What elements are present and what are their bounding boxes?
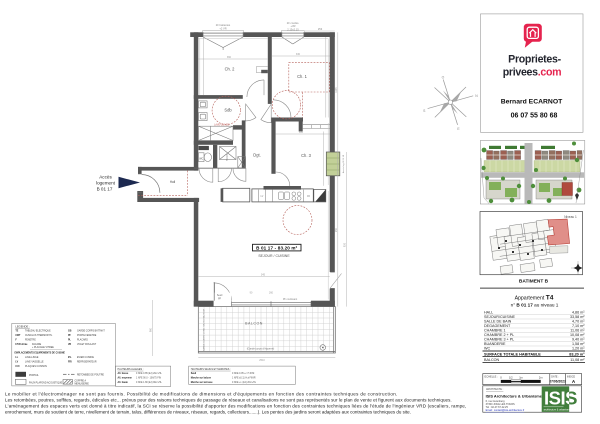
svg-text:1 NFE 90.0 - 106/75 FIN: 1 NFE 90.0 - 106/75 FIN (136, 378, 161, 380)
svg-text:(Garde corps d'équerre): (Garde corps d'équerre) (247, 346, 275, 350)
svg-text:2m: 2m (539, 376, 543, 380)
svg-text:Ch. 2: Ch. 2 (225, 67, 236, 72)
svg-text:VR: VR (68, 344, 72, 346)
svg-text:Accès log. B 01 18: Accès log. B 01 18 (342, 154, 345, 173)
svg-text:FACADE: FACADE (32, 343, 42, 346)
svg-text:1 NFE ±0.11 H.à FINIR: 1 NFE ±0.11 H.à FINIR (232, 378, 256, 380)
svg-text:HALL: HALL (484, 310, 493, 314)
svg-text:CMT: CMT (15, 335, 21, 337)
svg-text:1/2: 1/2 (509, 376, 513, 380)
svg-text:0 NFE 0.05 +/- H.FINI: 0 NFE 0.05 +/- H.FINI (232, 373, 255, 375)
svg-text:Appartement T4: Appartement T4 (515, 295, 554, 302)
svg-text:2510: 2510 (259, 359, 265, 362)
svg-text:PORTE FENETRE: PORTE FENETRE (77, 335, 97, 337)
svg-text:DATE :: DATE : (551, 375, 559, 378)
svg-text:PF: PF (218, 298, 222, 301)
svg-text:EVIER CUISINE: EVIER CUISINE (77, 357, 94, 359)
svg-text:privees.com: privees.com (503, 66, 562, 78)
svg-text:FR: FR (307, 196, 310, 198)
svg-text:CUMULUS THERMODYN.: CUMULUS THERMODYN. (25, 335, 53, 337)
svg-text:PORTAIL: PORTAIL (29, 374, 39, 377)
svg-text:PF coulissant: PF coulissant (283, 298, 298, 301)
svg-text:2.15x2.15: 2.15x2.15 (287, 27, 299, 31)
svg-text:1135: 1135 (335, 87, 338, 93)
svg-text:253: 253 (318, 27, 323, 31)
svg-text:Les retombées, poutres, soffit: Les retombées, poutres, soffites, regard… (5, 397, 452, 402)
svg-text:B 01 17 - 83.20 m²: B 01 17 - 83.20 m² (256, 246, 298, 251)
svg-text:EV.: EV. (68, 357, 72, 359)
svg-text:+2 VR: +2 VR (219, 26, 226, 30)
svg-text:WC: WC (199, 158, 203, 161)
svg-text:4,86 m²: 4,86 m² (572, 310, 585, 314)
svg-text:0 NFE 0.85 (EJ) 20c/+HL: 0 NFE 0.85 (EJ) 20c/+HL (136, 373, 162, 375)
svg-text:LV: LV (261, 196, 264, 198)
svg-text:Seuil: Seuil (191, 373, 197, 375)
svg-text:WC: WC (484, 346, 490, 350)
svg-text:Le mobilier et l'électroménage: Le mobilier et l'électroménager ne sont … (5, 391, 398, 396)
svg-text:ECHELLE :: ECHELLE : (485, 375, 499, 379)
svg-text:All. haute: All. haute (118, 381, 129, 384)
svg-text:Hall: Hall (170, 180, 176, 184)
svg-text:Dgt.: Dgt. (253, 153, 261, 158)
svg-text:RETOMBEE DE POUTRE: RETOMBEE DE POUTRE (77, 374, 104, 376)
svg-text:+ PLACAGE VITREE: + PLACAGE VITREE (32, 346, 54, 349)
svg-text:FAUX PLAFOND ACOUSTIQUE: FAUX PLAFOND ACOUSTIQUE (29, 382, 63, 385)
svg-text:11,08 m²: 11,08 m² (570, 358, 585, 362)
svg-text:SEJOUR / CUISINE: SEJOUR / CUISINE (258, 254, 290, 258)
svg-text:1,20 m²: 1,20 m² (572, 346, 585, 350)
svg-text:SEJOUR/CUISINE: SEJOUR/CUISINE (484, 315, 515, 319)
svg-text:0 NFE +/- (EJ) 20c/+HL: 0 NFE +/- (EJ) 20c/+HL (232, 382, 257, 384)
svg-text:TE: TE (15, 331, 18, 333)
svg-text:O: O (442, 76, 445, 80)
svg-text:B 01 17: B 01 17 (97, 187, 113, 192)
svg-text:ISIS Architecture & Urbanisme: ISIS Architecture & Urbanisme (486, 393, 543, 398)
svg-text:Email : contact@isis-architect: Email : contact@isis-architecture.fr (486, 409, 525, 412)
svg-text:LAVE-LINGE: LAVE-LINGE (25, 356, 39, 359)
svg-text:07/06/2023: 07/06/2023 (549, 379, 566, 383)
svg-text:1m: 1m (519, 376, 523, 380)
svg-text:Ch. 1: Ch. 1 (297, 74, 308, 79)
svg-text:Proprietes-: Proprietes- (508, 54, 561, 66)
svg-text:GB: GB (68, 331, 72, 333)
svg-text:0 NFE 1.80 (EJ) 90c/+HL: 0 NFE 1.80 (EJ) 90c/+HL (136, 382, 162, 384)
svg-text:9,40 m²: 9,40 m² (572, 337, 585, 341)
svg-text:SALLE DE BAIN: SALLE DE BAIN (484, 319, 512, 323)
svg-text:LEGENDE :: LEGENDE : (15, 324, 30, 328)
svg-text:10,08 m²: 10,08 m² (570, 333, 585, 337)
svg-text:DEGAGEMENT: DEGAGEMENT (484, 324, 511, 328)
svg-text:architecture & urbanisme: architecture & urbanisme (544, 408, 571, 411)
svg-text:Bernard ECARNOT: Bernard ECARNOT (501, 98, 563, 105)
svg-text:L'aménagement des espaces vert: L'aménagement des espaces verts est donn… (5, 403, 466, 408)
svg-text:310: 310 (299, 131, 304, 134)
svg-text:CHAMBRE 2 + PL: CHAMBRE 2 + PL (484, 333, 514, 337)
svg-text:All. basse: All. basse (118, 372, 129, 375)
svg-text:COFFRE A: COFFRE A (75, 380, 87, 383)
svg-text:TABLEAU ELECTRIQUE: TABLEAU ELECTRIQUE (25, 330, 51, 333)
svg-text:PLACARD: PLACARD (77, 338, 88, 341)
svg-text:33,58 m²: 33,58 m² (570, 315, 585, 319)
svg-text:CUI: CUI (15, 366, 19, 368)
svg-text:960: 960 (150, 327, 153, 332)
svg-text:7,10 m²: 7,10 m² (572, 324, 585, 328)
svg-text:11,06 m²: 11,06 m² (570, 328, 585, 332)
svg-text:GARDE CORPS VITRE TOUTE HAUTEU: GARDE CORPS VITRE TOUTE HAUTEUR (202, 308, 205, 351)
svg-text:345: 345 (261, 274, 266, 277)
svg-text:enrochement, murs de soutient: enrochement, murs de soutient de terre, … (5, 409, 411, 414)
svg-text:330: 330 (296, 53, 301, 56)
svg-text:F/VR vitrée: F/VR vitrée (15, 343, 28, 346)
svg-text:n° B 01 17 au niveau 1: n° B 01 17 au niveau 1 (511, 303, 559, 308)
svg-text:CHAMBRE 1: CHAMBRE 1 (484, 328, 506, 332)
svg-text:LAVE-GLACE: LAVE-GLACE (214, 123, 229, 126)
svg-text:260: 260 (269, 291, 274, 294)
svg-text:BALCON: BALCON (484, 358, 500, 362)
svg-text:HAUTEURS ALLEGES :: HAUTEURS ALLEGES : (118, 368, 144, 371)
svg-text:BALCON: BALCON (245, 321, 263, 325)
svg-text:LV: LV (15, 361, 18, 363)
svg-text:GARDE CORPS BATTANT: GARDE CORPS BATTANT (77, 330, 105, 333)
svg-text:PLAQUES CUISSON: PLAQUES CUISSON (25, 365, 47, 368)
svg-text:REFRIGERATEUR: REFRIGERATEUR (77, 360, 97, 363)
svg-text:BUANDERIE: BUANDERIE (484, 342, 506, 346)
svg-text:CHAMBRE 3 + PL: CHAMBRE 3 + PL (484, 337, 514, 341)
svg-text:ARCHITECTE :: ARCHITECTE : (486, 388, 504, 391)
svg-text:All. moyenne: All. moyenne (118, 377, 133, 380)
svg-text:250: 250 (335, 227, 338, 232)
svg-text:360: 360 (227, 56, 232, 59)
svg-text:EMPLACEMENTS EQUIPEMENTS DE CU: EMPLACEMENTS EQUIPEMENTS DE CUISINE (15, 351, 66, 354)
svg-text:1,58 m²: 1,58 m² (572, 342, 585, 346)
svg-text:FENETRE: FENETRE (25, 339, 36, 341)
svg-text:Sdb: Sdb (224, 108, 232, 113)
svg-text:83,20 m²: 83,20 m² (569, 352, 585, 356)
svg-text:Marche sur terrasse: Marche sur terrasse (191, 381, 214, 384)
svg-text:SURFACE TOTALE HABITABLE: SURFACE TOTALE HABITABLE (484, 352, 541, 356)
svg-text:4,70 m²: 4,70 m² (572, 319, 585, 323)
svg-text:Ch. 3: Ch. 3 (301, 153, 312, 158)
svg-text:HAUTEURS SEUILS ET MARCHES :: HAUTEURS SEUILS ET MARCHES : (191, 368, 231, 371)
svg-text:06 07 55 80 68: 06 07 55 80 68 (511, 113, 558, 120)
svg-text:930: 930 (344, 242, 347, 247)
svg-text:FRI: FRI (68, 361, 72, 363)
svg-text:Marche sur balcon: Marche sur balcon (191, 378, 212, 380)
svg-text:Buand.: Buand. (227, 153, 229, 160)
svg-text:logement: logement (96, 180, 116, 185)
svg-text:Accès: Accès (99, 174, 112, 179)
svg-text:BATIMENT B: BATIMENT B (519, 279, 549, 285)
svg-text:LAVE VAISSELLE: LAVE VAISSELLE (25, 360, 44, 363)
svg-text:Niveau 1: Niveau 1 (564, 215, 577, 219)
svg-text:VOLET ROULANT: VOLET ROULANT (77, 343, 97, 346)
svg-text:MENUISERIE: MENUISERIE (75, 384, 90, 386)
